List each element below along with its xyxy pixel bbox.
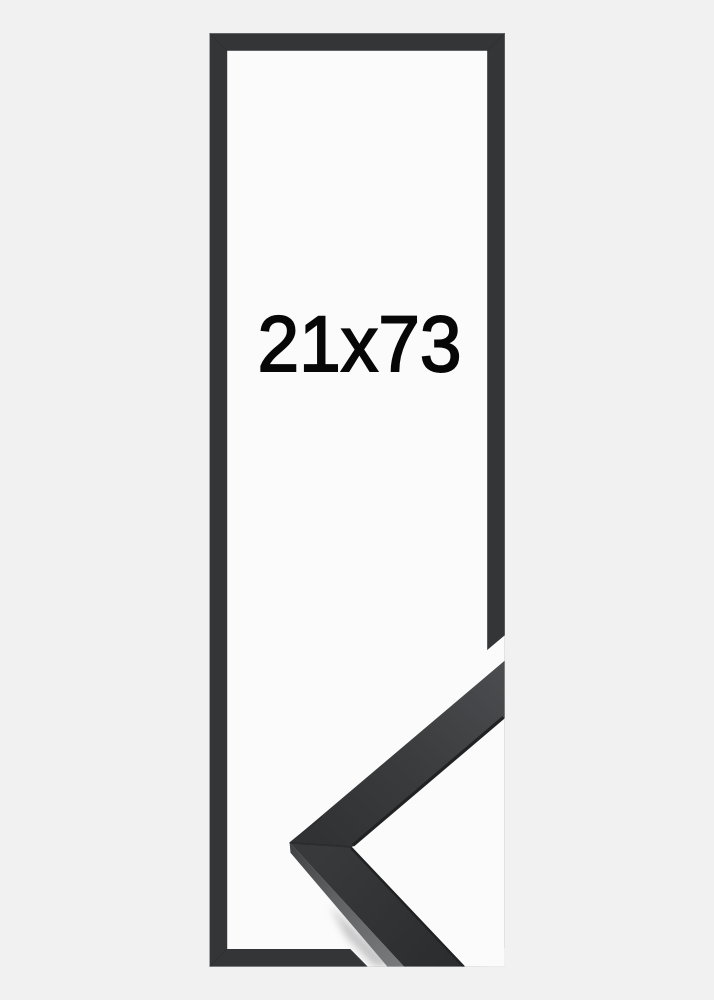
svg-text:21x73: 21x73: [258, 299, 462, 388]
